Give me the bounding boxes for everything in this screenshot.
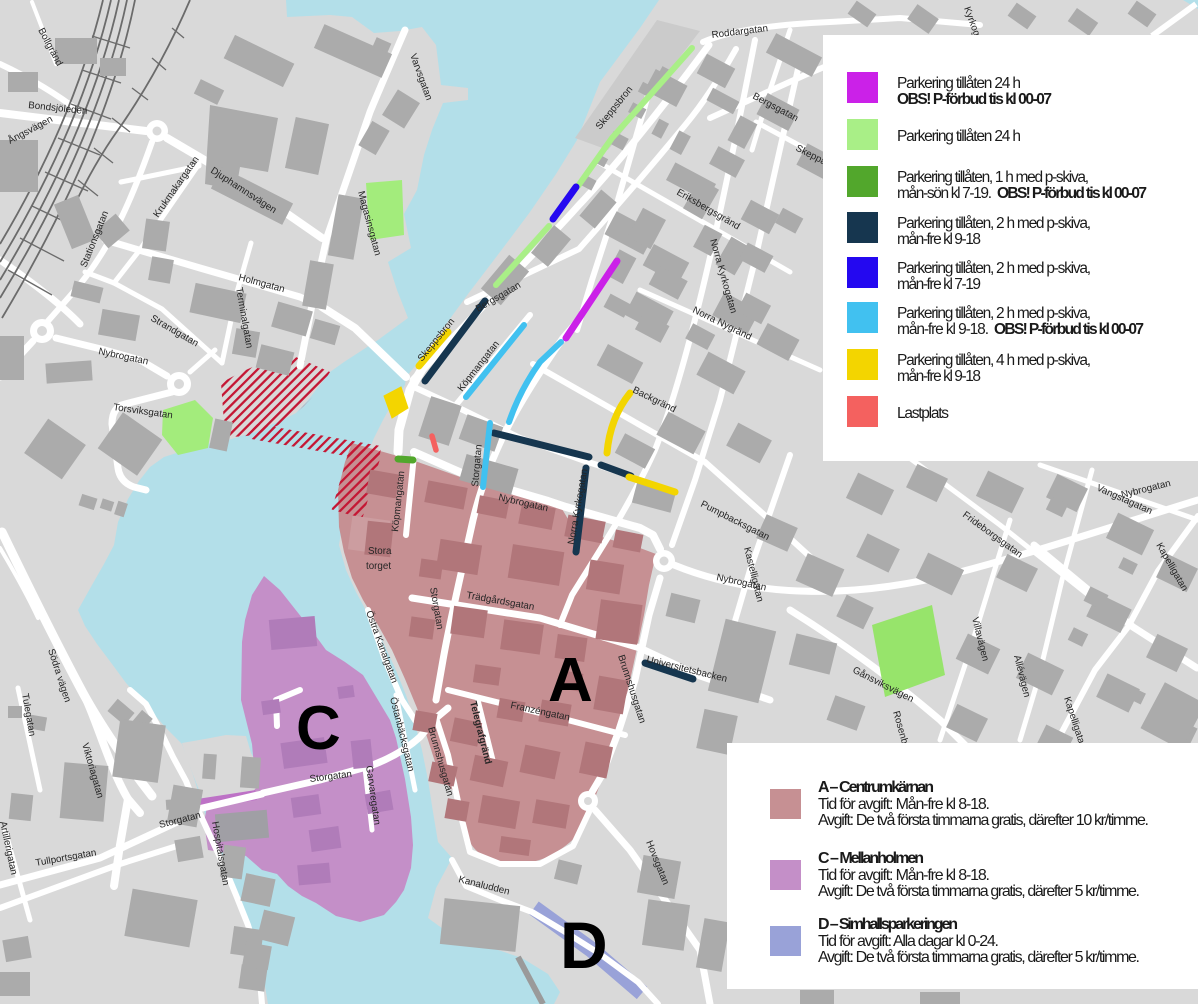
svg-text:mån-fre kl 9-18: mån-fre kl 9-18 — [897, 368, 981, 385]
svg-text:Tid för avgift: Mån-fre kl 8-1: Tid för avgift: Mån-fre kl 8-18. — [818, 866, 990, 884]
svg-text:OBS! P-förbud tis kl 00-07: OBS! P-förbud tis kl 00-07 — [994, 321, 1144, 338]
svg-text:C – Mellanholmen: C – Mellanholmen — [818, 850, 924, 867]
svg-text:OBS! P-förbud tis kl 00-07: OBS! P-förbud tis kl 00-07 — [897, 91, 1052, 108]
svg-text:A: A — [548, 646, 593, 715]
svg-text:Tid för avgift: Alla dagar kl: Tid för avgift: Alla dagar kl 0-24. — [818, 933, 999, 950]
svg-text:Parkering tillåten, 1 h med p-: Parkering tillåten, 1 h med p-skiva, — [897, 169, 1089, 186]
svg-text:D – Simhallsparkeringen: D – Simhallsparkeringen — [818, 916, 958, 933]
svg-text:Avgift: De två första timmarna: Avgift: De två första timmarna gratis, d… — [818, 811, 1149, 829]
svg-text:Parkering tillåten, 2 h med p-: Parkering tillåten, 2 h med p-skiva, — [897, 260, 1091, 277]
svg-text:Stora: Stora — [368, 546, 392, 557]
svg-text:torget: torget — [366, 561, 391, 572]
svg-text:mån-fre kl 9-18.: mån-fre kl 9-18. — [897, 321, 989, 338]
svg-text:Parkering tillåten 24 h: Parkering tillåten 24 h — [897, 75, 1021, 92]
svg-text:mån-fre kl 9-18: mån-fre kl 9-18 — [897, 231, 981, 248]
svg-text:Parkering tillåten 24 h: Parkering tillåten 24 h — [897, 128, 1021, 145]
svg-text:A – Centrumkärnan: A – Centrumkärnan — [818, 779, 934, 796]
svg-text:C: C — [296, 694, 341, 763]
svg-text:Parkering tillåten, 2 h med p-: Parkering tillåten, 2 h med p-skiva, — [897, 305, 1091, 322]
svg-text:Parkering tillåten, 4 h med p-: Parkering tillåten, 4 h med p-skiva, — [897, 352, 1091, 369]
svg-text:Avgift: De två första timmarna: Avgift: De två första timmarna gratis, d… — [818, 882, 1140, 900]
svg-text:Avgift: De två första timmarna: Avgift: De två första timmarna gratis, d… — [818, 948, 1140, 966]
svg-text:Parkering tillåten, 2 h med p-: Parkering tillåten, 2 h med p-skiva, — [897, 215, 1091, 232]
svg-text:Tid för avgift: Mån-fre kl 8-1: Tid för avgift: Mån-fre kl 8-18. — [818, 795, 990, 813]
svg-text:D: D — [560, 908, 608, 982]
svg-text:mån-fre kl 7-19: mån-fre kl 7-19 — [897, 276, 981, 293]
svg-text:Lastplats: Lastplats — [897, 405, 949, 422]
svg-text:OBS! P-förbud tis kl 00-07: OBS! P-förbud tis kl 00-07 — [997, 185, 1147, 202]
svg-text:mån-sön kl 7-19.: mån-sön kl 7-19. — [897, 185, 992, 202]
